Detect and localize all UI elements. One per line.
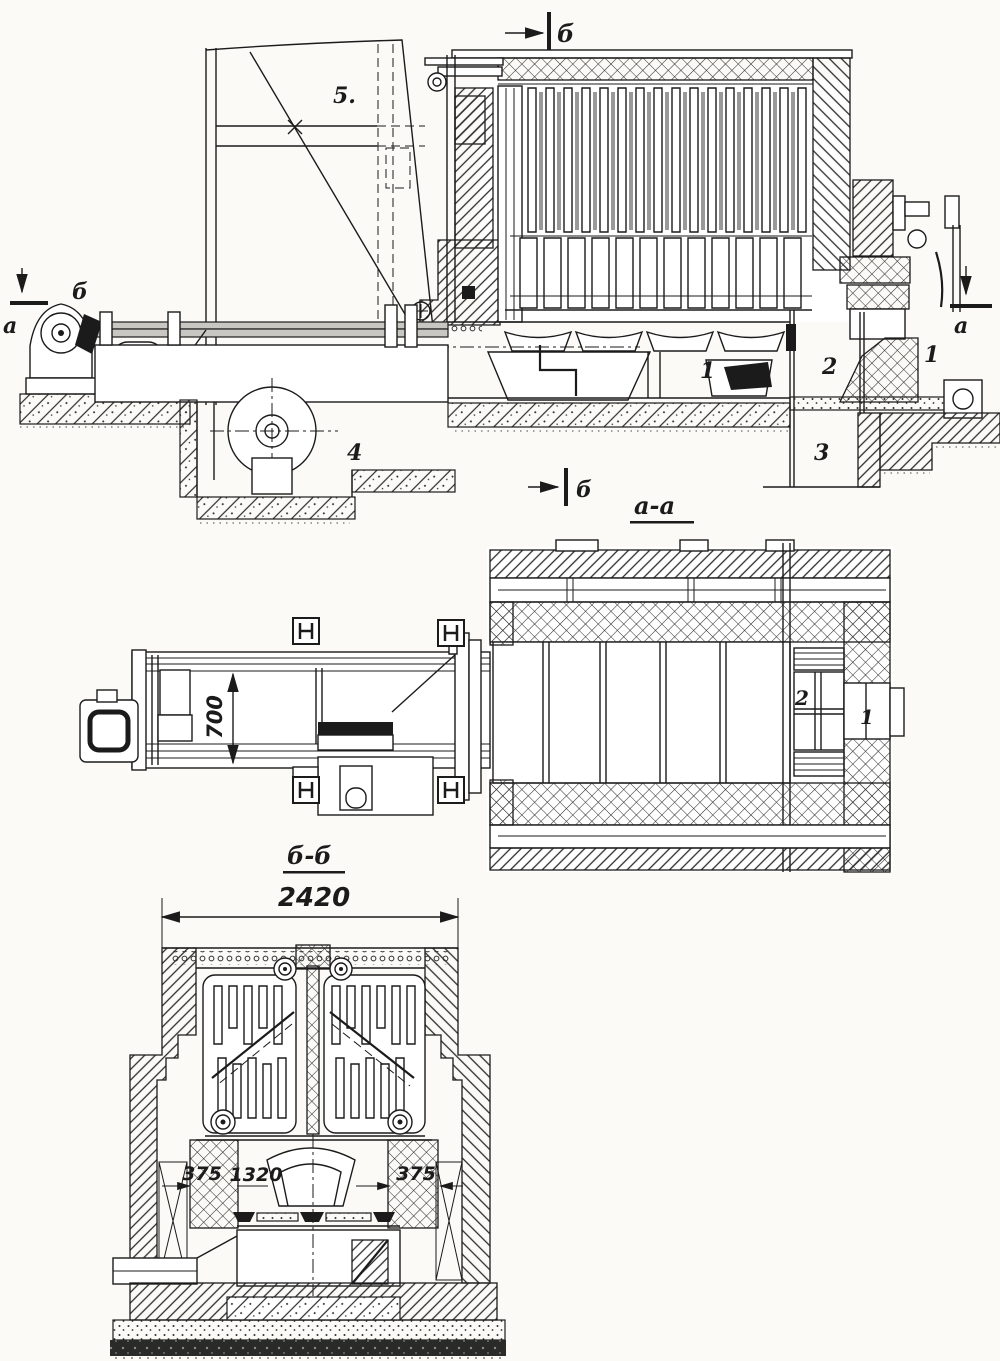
svg-text:а-а: а-а <box>634 491 675 520</box>
roller <box>330 958 352 980</box>
svg-text:2420: 2420 <box>278 883 350 913</box>
dimension-2420: 2420 <box>162 883 458 950</box>
section-letter: б <box>557 19 574 48</box>
hearth-trays: 1 <box>488 324 796 400</box>
part-label-1-door: 1 <box>924 342 939 368</box>
svg-text:б-б: б-б <box>287 841 332 870</box>
section-letter: а <box>3 313 17 339</box>
plan-section-a-a: 2 1 700 <box>80 540 904 874</box>
plan-view-title: а-а <box>630 491 694 524</box>
part-label-2-plan: 2 <box>794 686 809 710</box>
svg-text:1320: 1320 <box>230 1164 283 1186</box>
foundation <box>110 1283 506 1358</box>
part-label-2: 2 <box>821 354 837 380</box>
clamp-symbol <box>293 618 319 644</box>
section-marker-b-bottom: б <box>528 468 592 506</box>
cross-section-title: б-б <box>283 841 345 874</box>
clamp-symbol <box>293 777 319 803</box>
drawing-sheet: б 5. <box>0 0 1000 1361</box>
hearth-chamber: 375 1320 375 <box>113 1134 463 1296</box>
furnace-plan: 2 1 <box>487 540 904 872</box>
clamp-symbol <box>438 777 464 803</box>
roller <box>211 1110 235 1134</box>
part-label-3: 3 <box>814 440 829 466</box>
part-label-4: 4 <box>347 440 362 466</box>
section-marker-b-top: б <box>505 12 574 52</box>
x-brace <box>436 1162 462 1280</box>
section-marker-a-right: а <box>950 266 992 339</box>
section-letter: б <box>576 477 592 503</box>
svg-text:375: 375 <box>396 1163 436 1185</box>
furnace-body <box>412 50 893 334</box>
conveyor-plan: 700 <box>80 618 490 815</box>
furnace-foundation <box>448 398 790 431</box>
clamp-symbol <box>438 620 464 646</box>
part-label-5: 5. <box>333 83 356 109</box>
section-letter: б <box>72 279 88 305</box>
section-letter: а <box>954 313 968 339</box>
side-elevation-section: б 5. <box>3 12 1000 524</box>
roller <box>388 1110 412 1134</box>
roller <box>274 958 296 980</box>
part-label-1-plan: 1 <box>860 705 874 729</box>
svg-text:700: 700 <box>203 695 227 739</box>
svg-text:375: 375 <box>182 1163 222 1185</box>
heating-chamber <box>196 958 432 1140</box>
drawing-canvas: б 5. <box>0 0 1000 1361</box>
part-label-1: 1 <box>700 358 715 384</box>
cross-section-b-b: 2420 <box>110 883 506 1358</box>
